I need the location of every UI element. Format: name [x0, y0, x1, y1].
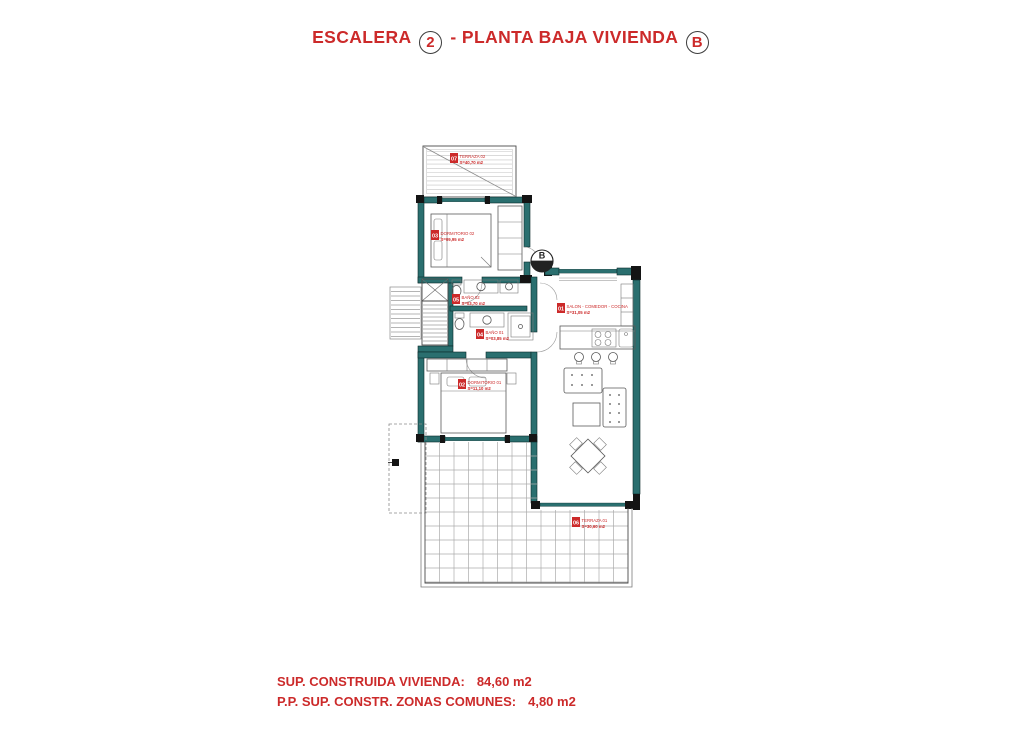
svg-text:01: 01 [558, 307, 564, 313]
svg-text:S=11,10 m2: S=11,10 m2 [468, 386, 492, 391]
shower-icon [508, 313, 533, 340]
toilet-icon [455, 313, 464, 330]
side-table-icon [573, 403, 600, 426]
dining-table-icon [558, 426, 617, 485]
svg-text:02: 02 [459, 383, 465, 389]
svg-text:07: 07 [451, 157, 457, 163]
sink-icon [470, 313, 504, 327]
room-label-dormitorio-02: 03 DORMITORIO 02 S=09,95 m2 [431, 230, 475, 242]
svg-text:04: 04 [477, 333, 484, 339]
area-summary-line2: P.P. SUP. CONSTR. ZONAS COMUNES:4,80 m2 [277, 692, 576, 712]
area-summary: SUP. CONSTRUIDA VIVIENDA:84,60 m2 P.P. S… [277, 672, 576, 712]
area-summary-line1: SUP. CONSTRUIDA VIVIENDA:84,60 m2 [277, 672, 576, 692]
svg-text:BAÑO 01: BAÑO 01 [486, 330, 505, 335]
hob-icon [592, 329, 616, 347]
entrance-letter: B [539, 251, 546, 261]
nightstand-icon [430, 373, 439, 384]
stool-icon [609, 353, 618, 365]
sofa-icon [564, 368, 602, 393]
bench-seat-icon [603, 388, 626, 427]
svg-text:S=30,60 m2: S=30,60 m2 [582, 524, 606, 529]
svg-text:S=03,85 m2: S=03,85 m2 [486, 336, 510, 341]
wardrobe-icon [498, 206, 522, 270]
downspout-marker-icon [388, 459, 399, 466]
walls [416, 195, 641, 510]
line2-value: 4,80 m2 [528, 694, 576, 709]
floor-plan: B [0, 0, 1024, 732]
room-label-terraza-01: 06 TERRAZA 01 S=30,60 m2 [572, 517, 608, 529]
room-label-salon: 01 SALON - COMEDOR - COCINA S=31,05 m2 [557, 303, 628, 315]
line1-value: 84,60 m2 [477, 674, 532, 689]
stairs-and-shaft [390, 279, 448, 345]
svg-text:S=40,70 m2: S=40,70 m2 [460, 160, 484, 165]
line2-label: P.P. SUP. CONSTR. ZONAS COMUNES: [277, 694, 516, 709]
room-label-dormitorio-01: 02 DORMITORIO 01 S=11,10 m2 [458, 379, 502, 391]
svg-text:S=31,05 m2: S=31,05 m2 [567, 310, 591, 315]
dormitorio-01-furniture [427, 359, 516, 433]
svg-text:SALON - COMEDOR - COCINA: SALON - COMEDOR - COCINA [567, 304, 628, 309]
room-label-bano-02: 05 BAÑO 02 S=03,70 m2 [452, 294, 486, 306]
kitchen-sink-icon [619, 329, 633, 347]
svg-text:06: 06 [573, 521, 579, 527]
svg-text:TERRAZA 02: TERRAZA 02 [460, 154, 486, 159]
svg-text:S=03,70 m2: S=03,70 m2 [462, 301, 486, 306]
svg-text:DORMITORIO 01: DORMITORIO 01 [468, 380, 502, 385]
svg-text:BAÑO 02: BAÑO 02 [462, 295, 481, 300]
wardrobe-icon [427, 359, 507, 371]
svg-text:05: 05 [453, 298, 459, 304]
room-label-bano-01: 04 BAÑO 01 S=03,85 m2 [476, 329, 510, 341]
stool-icon [575, 353, 584, 365]
nightstand-icon [507, 373, 516, 384]
room-label-terraza-02: 07 TERRAZA 02 S=40,70 m2 [450, 153, 486, 165]
entrance-marker: B [531, 250, 553, 272]
svg-text:TERRAZA 01: TERRAZA 01 [582, 518, 608, 523]
svg-text:03: 03 [432, 234, 438, 240]
svg-text:S=09,95 m2: S=09,95 m2 [441, 237, 465, 242]
stairs-icon [422, 301, 448, 345]
svg-text:DORMITORIO 02: DORMITORIO 02 [441, 231, 475, 236]
line1-label: SUP. CONSTRUIDA VIVIENDA: [277, 674, 465, 689]
stool-icon [592, 353, 601, 365]
